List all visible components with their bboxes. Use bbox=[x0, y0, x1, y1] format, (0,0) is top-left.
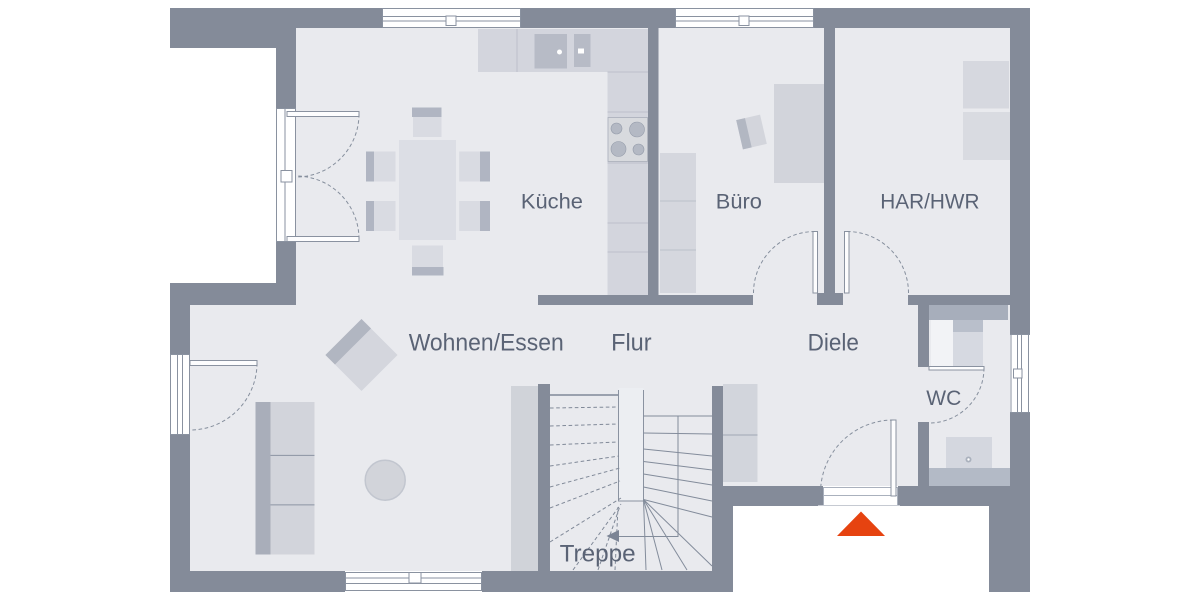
svg-text:WC: WC bbox=[926, 387, 961, 410]
svg-text:Treppe: Treppe bbox=[560, 540, 636, 567]
svg-text:Küche: Küche bbox=[521, 190, 583, 214]
svg-text:Flur: Flur bbox=[611, 330, 652, 357]
svg-text:HAR/HWR: HAR/HWR bbox=[880, 191, 979, 214]
svg-text:Wohnen/Essen: Wohnen/Essen bbox=[409, 329, 564, 356]
svg-text:Diele: Diele bbox=[808, 330, 859, 357]
svg-text:Büro: Büro bbox=[716, 189, 762, 213]
